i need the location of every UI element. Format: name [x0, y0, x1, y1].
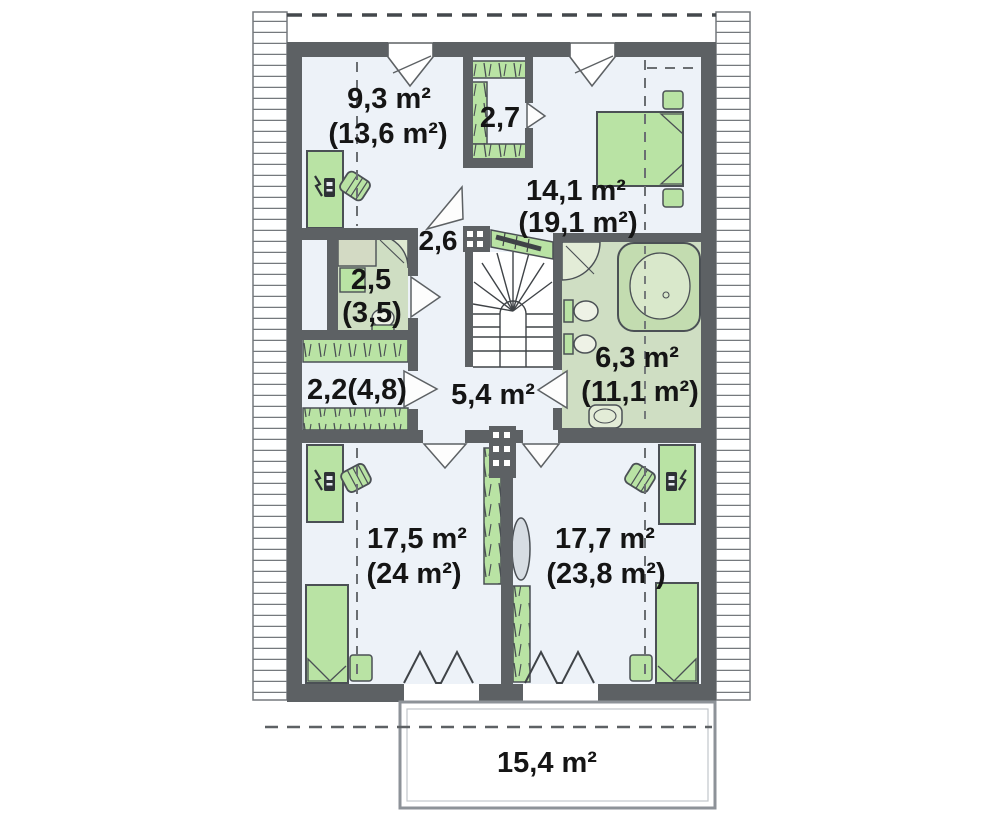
- floor-plan-page: 9,3 m² (13,6 m²) 2,7 14,1 m² (19,1 m²) 2…: [0, 0, 1000, 822]
- area-label-landing: 2,6: [419, 225, 458, 256]
- area-label-bedroom-bottom-right-2: (23,8 m²): [546, 558, 665, 590]
- floor-plan-canvas: 9,3 m² (13,6 m²) 2,7 14,1 m² (19,1 m²) 2…: [0, 0, 1000, 822]
- area-label-bedroom-top-left: 9,3 m²: [347, 83, 431, 115]
- balcony: [265, 702, 715, 808]
- area-label-bedroom-top-left-2: (13,6 m²): [328, 118, 447, 150]
- area-label-bathroom-2: (11,1 m²): [581, 376, 699, 408]
- area-label-bedroom-top-right: 14,1 m²: [526, 175, 626, 207]
- area-label-hallway: 5,4 m²: [451, 379, 535, 411]
- area-label-wc: 2,5: [351, 264, 391, 296]
- winder-staircase: [473, 252, 553, 367]
- area-label-bedroom-top-right-2: (19,1 m²): [518, 207, 637, 239]
- area-label-closet: 2,7: [480, 102, 520, 134]
- area-label-bedroom-bottom-left: 17,5 m²: [367, 523, 467, 555]
- area-label-wardrobe-corridor: 2,2(4,8): [307, 374, 407, 406]
- area-label-bathroom: 6,3 m²: [595, 342, 679, 374]
- area-label-bedroom-bottom-left-2: (24 m²): [366, 558, 461, 590]
- area-label-bedroom-bottom-right: 17,7 m²: [555, 523, 655, 555]
- area-label-balcony: 15,4 m²: [497, 747, 597, 779]
- area-label-wc-2: (3,5): [342, 297, 402, 329]
